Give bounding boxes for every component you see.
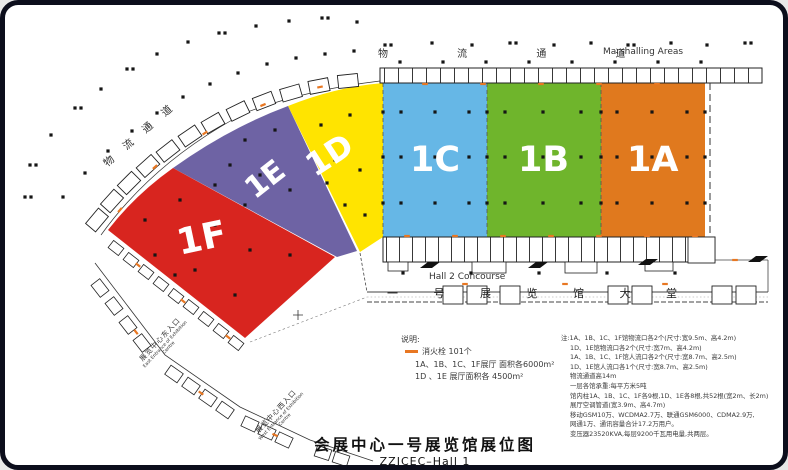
hydrant-line-icon [405, 350, 418, 353]
note-line: 馆内柱1A、1B、1C、1F各9根,1D、1E各8根,共52根(宽2m、长2m) [561, 392, 768, 402]
legend-hydrant-label: 消火栓 101个 [422, 347, 472, 356]
note-line: 物流通道高14m [561, 372, 768, 382]
top-room-band [380, 68, 762, 83]
page-subtitle: ZZICEC–Hall 1 [255, 455, 595, 468]
legend-area-line1: 1A、1B、1C、1F展厅 面积各6000m² [401, 359, 554, 371]
legend-heading: 说明: [401, 334, 554, 346]
note-line: 1D、1E馆人流口各1个(尺寸:宽8.7m、高2.5m) [561, 363, 768, 373]
marshalling-areas-label: Marshalling Areas [603, 47, 683, 57]
hall-1f-label: 1F [174, 216, 230, 262]
title-block: 会展中心一号展览馆展位图 ZZICEC–Hall 1 [255, 433, 595, 468]
note-line: 一层各馆承重:每平方米5吨 [561, 382, 768, 392]
hall-1c-label: 1C [410, 143, 460, 178]
hall-1b-label: 1B [518, 143, 569, 178]
note-line: 1A、1B、1C、1F馆人流口各2个(尺寸:宽8.7m、高2.5m) [561, 353, 768, 363]
legend-hydrant-row: 消火栓 101个 [401, 346, 554, 358]
legend: 说明: 消火栓 101个 1A、1B、1C、1F展厅 面积各6000m² 1D … [401, 334, 554, 384]
note-line: 1D、1E馆物流口各2个(尺寸:宽7m、高4.2m) [561, 344, 768, 354]
notes-block: 注:1A、1B、1C、1F馆物流口各2个(尺寸:宽9.5m、高4.2m) 1D、… [561, 334, 768, 440]
legend-area-line2: 1D 、1E 展厅面积各 4500m² [401, 371, 554, 383]
hall1-lobby-label: 一 号 展 览 馆 大 堂 [387, 285, 693, 301]
note-line: 展厅空调管道(宽3.9m、高4.7m) [561, 401, 768, 411]
page-title: 会展中心一号展览馆展位图 [255, 433, 595, 455]
hall2-concourse-label: Hall 2 Concourse [429, 272, 505, 282]
note-line: 网通1万、通讯容量合计17.2万用户。 [561, 420, 768, 430]
note-line: 注:1A、1B、1C、1F馆物流口各2个(尺寸:宽9.5m、高4.2m) [561, 334, 768, 344]
hall-1a-label: 1A [627, 143, 678, 178]
floor-plan-page: 物 流 通 道 Marshalling Areas 物流通道 Hall 2 Co… [0, 0, 788, 470]
